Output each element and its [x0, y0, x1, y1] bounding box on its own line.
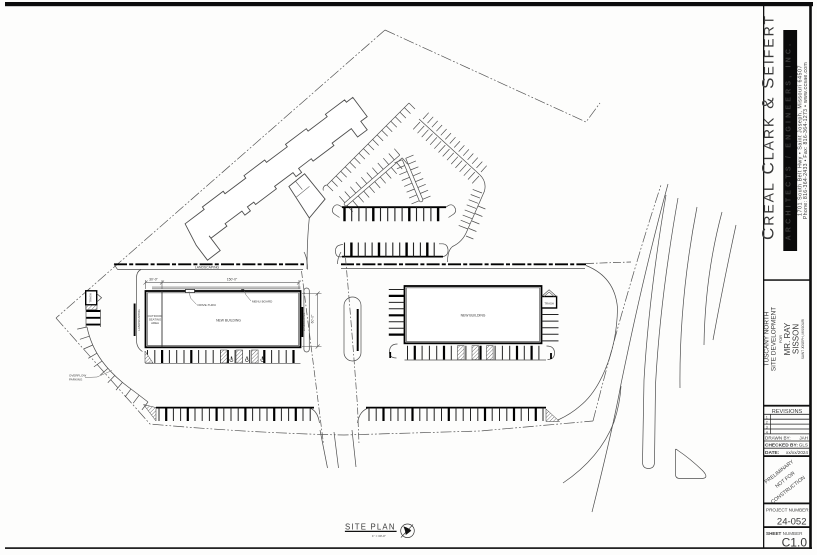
svg-text:SITE PLAN: SITE PLAN	[345, 523, 396, 532]
svg-text:AREA: AREA	[151, 321, 159, 325]
svg-text:LANDSCAPING: LANDSCAPING	[302, 313, 306, 332]
svg-text:4: 4	[766, 430, 768, 434]
svg-text:JAH: JAH	[799, 436, 808, 441]
svg-text:2: 2	[766, 421, 768, 425]
svg-text:1: 1	[766, 416, 768, 420]
svg-text:CHECKED BY:: CHECKED BY:	[765, 443, 798, 449]
svg-text:DRAWN BY:: DRAWN BY:	[765, 436, 791, 441]
svg-text:CREAL CLARK & SEIFERT: CREAL CLARK & SEIFERT	[759, 14, 778, 240]
svg-text:3: 3	[766, 425, 768, 429]
svg-text:DATE:: DATE:	[765, 450, 780, 456]
svg-text:TUSCANY NORTH: TUSCANY NORTH	[764, 311, 771, 366]
svg-text:GLS: GLS	[799, 443, 808, 448]
svg-text:C1.0: C1.0	[782, 536, 808, 550]
svg-text:MENU BOARD: MENU BOARD	[252, 299, 273, 303]
svg-text:24-052: 24-052	[777, 517, 807, 528]
svg-text:Phone: 816-364-2433 • Fax: 816: Phone: 816-364-2433 • Fax: 816-364-1273 …	[803, 62, 809, 219]
svg-text:SAINT JOSEPH, MISSOURI: SAINT JOSEPH, MISSOURI	[801, 319, 805, 360]
svg-text:DRIVE-THRU: DRIVE-THRU	[198, 303, 217, 307]
svg-text:TRASH: TRASH	[544, 302, 553, 306]
svg-text:NEW BUILDING: NEW BUILDING	[461, 314, 486, 318]
svg-text:SITE DEVELOPMENT: SITE DEVELOPMENT	[771, 307, 778, 371]
svg-text:1" = 30'-0": 1" = 30'-0"	[372, 534, 386, 538]
svg-text:SISSON: SISSON	[792, 324, 801, 354]
svg-text:ARCHITECTS / ENGINEERS, INC.: ARCHITECTS / ENGINEERS, INC.	[786, 41, 793, 241]
svg-text:150'-0": 150'-0"	[227, 278, 238, 282]
svg-text:NEW BUILDING: NEW BUILDING	[216, 319, 241, 323]
svg-text:PROJECT NUMBER: PROJECT NUMBER	[766, 508, 809, 513]
svg-text:60'-0": 60'-0"	[311, 314, 315, 323]
svg-text:LANDSCAPING: LANDSCAPING	[195, 265, 220, 269]
svg-text:PARKING: PARKING	[69, 377, 83, 381]
svg-text:30'-0": 30'-0"	[149, 278, 158, 282]
svg-text:TRASH: TRASH	[89, 293, 93, 302]
svg-text:LANDSCAPING: LANDSCAPING	[137, 309, 141, 331]
svg-text:xx/xx/2024: xx/xx/2024	[786, 450, 808, 455]
